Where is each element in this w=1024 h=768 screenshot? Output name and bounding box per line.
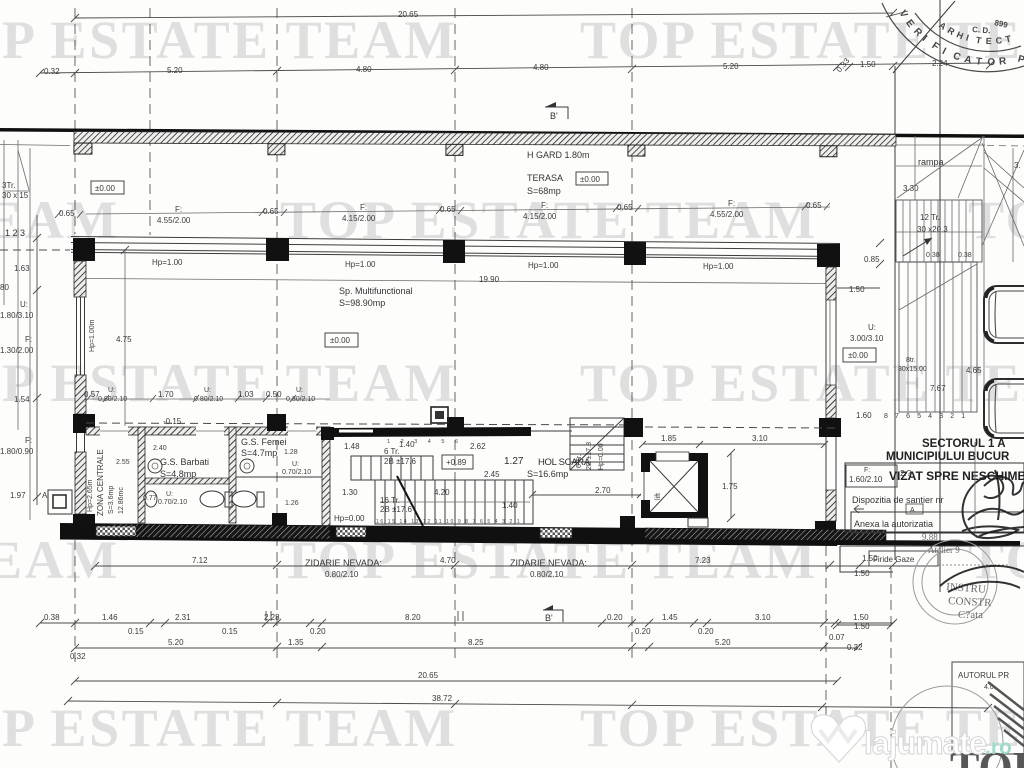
svg-text:0.38: 0.38	[958, 252, 972, 259]
svg-text:5.20: 5.20	[167, 66, 183, 75]
svg-text:0.50: 0.50	[266, 390, 282, 399]
svg-text:E: E	[985, 36, 992, 46]
svg-text:lajumate: lajumate	[864, 725, 986, 761]
svg-text:1.03: 1.03	[238, 390, 254, 399]
svg-text:16 Tr.: 16 Tr.	[380, 496, 400, 505]
svg-text:1.75: 1.75	[722, 482, 738, 491]
svg-text:rampa: rampa	[918, 157, 944, 167]
svg-text:A: A	[910, 507, 915, 514]
svg-text:1.63: 1.63	[14, 264, 30, 273]
svg-text:1.26: 1.26	[285, 500, 299, 507]
svg-text:.ro: .ro	[985, 736, 1012, 759]
svg-text:4.70: 4.70	[440, 556, 456, 565]
svg-text:7.23: 7.23	[695, 556, 711, 565]
svg-text:U:: U:	[868, 323, 876, 332]
svg-text:1.80/3.10: 1.80/3.10	[0, 311, 34, 320]
svg-text:F:: F:	[864, 467, 870, 474]
svg-text:F:: F:	[25, 335, 32, 344]
svg-text:0.65: 0.65	[440, 205, 456, 214]
svg-text:2.55: 2.55	[116, 459, 130, 466]
svg-text:TOP ESTATE TEAM: TOP ESTATE TEAM	[0, 10, 458, 70]
svg-text:0.38: 0.38	[926, 252, 940, 259]
svg-text:U:: U:	[292, 461, 299, 468]
svg-text:1.48: 1.48	[344, 442, 360, 451]
svg-text:1.50: 1.50	[854, 569, 870, 578]
svg-text:38.72: 38.72	[432, 694, 453, 703]
svg-text:1.30: 1.30	[342, 488, 358, 497]
svg-text:1.85: 1.85	[661, 434, 677, 443]
svg-text:2.45: 2.45	[484, 470, 500, 479]
svg-text:1.30/2.00: 1.30/2.00	[0, 346, 34, 355]
svg-text:Sp. Multifunctional: Sp. Multifunctional	[339, 286, 413, 296]
svg-text:8tr.: 8tr.	[906, 357, 916, 364]
svg-text:Hp=1.00: Hp=1.00	[345, 260, 376, 269]
svg-text:0.20: 0.20	[698, 627, 714, 636]
svg-text:30 x20.3: 30 x20.3	[917, 225, 948, 234]
svg-text:+0.89: +0.89	[446, 458, 467, 467]
svg-text:0.07: 0.07	[829, 633, 845, 642]
svg-text:3.10: 3.10	[755, 613, 771, 622]
svg-text:1.40: 1.40	[399, 440, 415, 449]
svg-text:U:: U:	[166, 491, 173, 498]
svg-text:C?ata: C?ata	[958, 609, 983, 621]
svg-text:19.90: 19.90	[479, 275, 500, 284]
svg-text:8 7 6 5 4 3 2 1: 8 7 6 5 4 3 2 1	[884, 413, 968, 420]
svg-text:0.80/2.10: 0.80/2.10	[194, 396, 223, 403]
svg-text:U:: U:	[296, 387, 303, 394]
svg-text:±0.00: ±0.00	[848, 351, 869, 360]
svg-text:Hp=1.00: Hp=1.00	[528, 261, 559, 270]
svg-text:0.70/2.10: 0.70/2.10	[158, 499, 187, 506]
svg-text:2.62: 2.62	[470, 442, 486, 451]
svg-text:0.65: 0.65	[59, 209, 75, 218]
svg-text:B': B'	[545, 613, 553, 623]
svg-text:5.20: 5.20	[168, 638, 184, 647]
svg-text:8.20: 8.20	[405, 613, 421, 622]
svg-text:Hp=0.00: Hp=0.00	[334, 514, 365, 523]
svg-text:4.15/2.00: 4.15/2.00	[523, 212, 557, 221]
svg-text:0.80/2.10: 0.80/2.10	[286, 396, 315, 403]
svg-text:B': B'	[550, 111, 558, 121]
svg-text:G.S. Femei: G.S. Femei	[241, 437, 287, 447]
svg-text:0.20: 0.20	[635, 627, 651, 636]
svg-text:ZONA CENTRALE: ZONA CENTRALE	[96, 449, 105, 516]
svg-text:2.40: 2.40	[153, 445, 167, 452]
svg-text:4.55/2.00: 4.55/2.00	[710, 210, 744, 219]
svg-text:2.70: 2.70	[595, 486, 611, 495]
svg-text:0.80/2.10: 0.80/2.10	[98, 396, 127, 403]
svg-text:S=98.90mp: S=98.90mp	[339, 298, 385, 308]
svg-text:9,88: 9,88	[922, 532, 938, 542]
svg-text:12.86mc: 12.86mc	[118, 487, 125, 514]
svg-text:TOP ESTATE TEAM: TOP ESTATE TEAM	[0, 353, 458, 413]
svg-text:20.65: 20.65	[418, 671, 439, 680]
svg-text:MUNICIPIULUI BUCUR: MUNICIPIULUI BUCUR	[886, 451, 1010, 463]
svg-text:Hp=0.00: Hp=0.00	[598, 443, 605, 470]
svg-text:5.20: 5.20	[723, 62, 739, 71]
svg-text:S=4.7mp: S=4.7mp	[241, 448, 277, 458]
svg-text:±0.00: ±0.00	[95, 184, 116, 193]
svg-text:4.55/2.00: 4.55/2.00	[157, 216, 191, 225]
svg-text:0.77: 0.77	[143, 495, 157, 502]
svg-text:C. D.: C. D.	[972, 25, 991, 35]
svg-text:1.46: 1.46	[102, 613, 118, 622]
svg-text:8.25: 8.25	[468, 638, 484, 647]
svg-text:0.80/2.10: 0.80/2.10	[530, 570, 564, 579]
svg-text:1.40: 1.40	[502, 501, 518, 510]
svg-text:0.15: 0.15	[128, 627, 144, 636]
svg-text:TERASA: TERASA	[527, 173, 563, 183]
svg-text:S=68mp: S=68mp	[527, 186, 561, 196]
svg-text:F:: F:	[175, 205, 182, 214]
svg-text:0.65: 0.65	[806, 201, 822, 210]
svg-text:0.65: 0.65	[263, 207, 279, 216]
svg-text:TOP ESTATE TEAM: TOP ESTATE TEAM	[0, 698, 458, 758]
svg-text:Hp=1.00: Hp=1.00	[152, 258, 183, 267]
svg-text:U:: U:	[108, 387, 115, 394]
svg-text:F:: F:	[728, 199, 735, 208]
svg-text:6 Tr.: 6 Tr.	[384, 447, 400, 456]
svg-text:lift: lift	[655, 493, 662, 500]
svg-text:1.28: 1.28	[284, 449, 298, 456]
svg-text:80: 80	[0, 283, 9, 292]
svg-text:1 2 3: 1 2 3	[5, 228, 25, 238]
svg-text:ZIDARIE NEVADA:: ZIDARIE NEVADA:	[305, 558, 382, 568]
svg-text:F:: F:	[541, 201, 548, 210]
svg-text:4.80: 4.80	[356, 65, 372, 74]
svg-text:0.32: 0.32	[70, 652, 86, 661]
svg-text:Hp=2.65m: Hp=2.65m	[87, 479, 94, 512]
svg-text:30 x 15: 30 x 15	[2, 191, 29, 200]
svg-text:S=3.6mp: S=3.6mp	[108, 486, 115, 514]
svg-text:±0.00: ±0.00	[580, 175, 601, 184]
svg-text:±0.00: ±0.00	[330, 336, 351, 345]
svg-text:1.50: 1.50	[849, 285, 865, 294]
svg-text:16 15 14 13 12 11 10 9 8 7 6 5: 16 15 14 13 12 11 10 9 8 7 6 5 4 3 2 1	[376, 519, 521, 525]
svg-text:6 Tr.: 6 Tr.	[576, 454, 583, 468]
svg-text:1.70: 1.70	[158, 390, 174, 399]
svg-text:4.15/2.00: 4.15/2.00	[342, 214, 376, 223]
svg-text:4.75: 4.75	[116, 335, 132, 344]
svg-text:30x15.00: 30x15.00	[898, 366, 927, 373]
svg-text:O: O	[987, 57, 995, 68]
svg-text:0.20: 0.20	[310, 627, 326, 636]
svg-text:TOP ESTATE TEAM: TOP ESTATE TEAM	[968, 190, 1024, 250]
svg-text:Firide Gaze: Firide Gaze	[873, 555, 915, 564]
svg-text:3.00/3.10: 3.00/3.10	[850, 334, 884, 343]
svg-text:7.67: 7.67	[930, 384, 946, 393]
svg-text:Dispozitia de santier nr: Dispozitia de santier nr	[852, 495, 944, 505]
svg-text:C: C	[995, 35, 1003, 45]
svg-text:CONSTR: CONSTR	[948, 595, 993, 609]
svg-text:0.85: 0.85	[864, 255, 880, 264]
svg-text:F:: F:	[25, 436, 32, 445]
svg-text:0.20: 0.20	[607, 613, 623, 622]
svg-text:0.70/2.10: 0.70/2.10	[282, 469, 311, 476]
svg-text:1.45: 1.45	[662, 613, 678, 622]
svg-text:2.28: 2.28	[264, 613, 280, 622]
svg-text:H GARD 1.80m: H GARD 1.80m	[527, 150, 590, 160]
svg-text:1.97: 1.97	[10, 491, 26, 500]
svg-text:5.20: 5.20	[715, 638, 731, 647]
svg-text:3Tr.: 3Tr.	[2, 181, 15, 190]
svg-text:0.65: 0.65	[617, 203, 633, 212]
svg-text:0.32: 0.32	[44, 67, 60, 76]
svg-text:4.80: 4.80	[533, 63, 549, 72]
svg-text:U:: U:	[20, 300, 28, 309]
svg-text:2B ±17.6: 2B ±17.6	[380, 505, 413, 514]
svg-text:12 Tr.: 12 Tr.	[920, 213, 940, 222]
svg-text:4.65: 4.65	[966, 366, 982, 375]
svg-text:G.S. Barbati: G.S. Barbati	[160, 457, 209, 467]
svg-text:2B ±17.6: 2B ±17.6	[384, 457, 417, 466]
svg-text:0.80/2.10: 0.80/2.10	[325, 570, 359, 579]
svg-text:1.54: 1.54	[14, 395, 30, 404]
svg-text:3.10: 3.10	[752, 434, 768, 443]
svg-text:1.60: 1.60	[856, 411, 872, 420]
svg-text:20.65: 20.65	[398, 10, 419, 19]
svg-text:AUTORUL PR: AUTORUL PR	[958, 671, 1009, 680]
svg-text:1.60/2.10: 1.60/2.10	[849, 475, 883, 484]
svg-text:1.27: 1.27	[504, 456, 524, 467]
svg-text:SECTORUL 1 A: SECTORUL 1 A	[922, 438, 1006, 450]
svg-text:0.15: 0.15	[222, 627, 238, 636]
svg-text:1.35: 1.35	[288, 638, 304, 647]
svg-text:7.12: 7.12	[192, 556, 208, 565]
svg-text:2.?: 2.?	[900, 469, 912, 478]
svg-text:Atelier 9: Atelier 9	[928, 545, 960, 555]
svg-text:S=16.6mp: S=16.6mp	[527, 469, 568, 479]
svg-text:1.80/0.90: 1.80/0.90	[0, 447, 34, 456]
svg-text:2.31: 2.31	[175, 613, 191, 622]
svg-text:Hp=1.00m: Hp=1.00m	[89, 319, 96, 352]
svg-text:U:: U:	[204, 387, 211, 394]
svg-text:1.50: 1.50	[853, 613, 869, 622]
svg-text:Anexa la autorizatia: Anexa la autorizatia	[854, 519, 933, 529]
svg-text:0.38: 0.38	[44, 613, 60, 622]
svg-text:ZIDARIE NEVADA:: ZIDARIE NEVADA:	[510, 558, 587, 568]
svg-text:1.50: 1.50	[860, 60, 876, 69]
svg-text:-0.15: -0.15	[163, 417, 182, 426]
svg-text:1.50: 1.50	[862, 554, 878, 563]
svg-text:2B ±17.8: 2B ±17.8	[586, 442, 593, 470]
svg-text:Hp=1.00: Hp=1.00	[703, 262, 734, 271]
svg-text:TOP ESTATE TEAM: TOP ESTATE TEAM	[580, 353, 1024, 413]
svg-text:4.20: 4.20	[434, 488, 450, 497]
svg-text:F:: F:	[360, 203, 367, 212]
svg-text:S=4.8mp: S=4.8mp	[160, 469, 196, 479]
